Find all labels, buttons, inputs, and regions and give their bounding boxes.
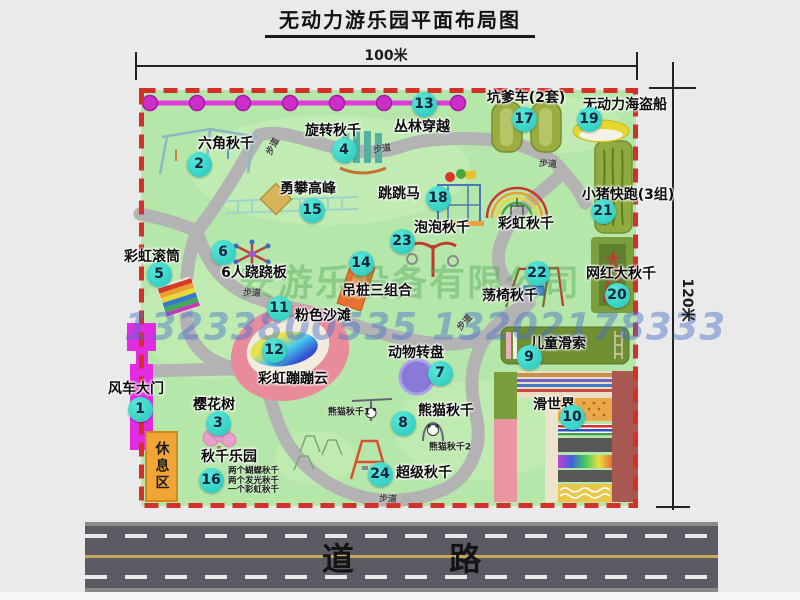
sublabel-panda-swing-2: 熊猫秋千2 <box>429 440 471 453</box>
badge-22: 22 <box>525 261 550 286</box>
label-pit-car: 坑爹车(2套) <box>487 87 566 107</box>
label-windmill-gate: 风车大门 <box>108 378 164 398</box>
label-rainbow-swing: 彩虹秋千 <box>498 213 554 233</box>
label-animal-carousel: 动物转盘 <box>388 342 444 362</box>
label-peak-climbing: 勇攀高峰 <box>280 178 336 198</box>
badge-16: 16 <box>199 468 224 493</box>
badge-18: 18 <box>426 186 451 211</box>
walkway-label-3: 步道 <box>539 156 558 170</box>
badge-21: 21 <box>591 199 616 224</box>
badge-2: 2 <box>187 152 212 177</box>
swing-park-note-3: 一个彩虹秋千 <box>228 486 279 496</box>
badge-13: 13 <box>412 92 437 117</box>
dimension-height-label: 120米 <box>678 278 698 321</box>
badge-24: 24 <box>368 462 393 487</box>
badge-3: 3 <box>206 411 231 436</box>
label-super-swing: 超级秋千 <box>396 462 452 482</box>
rest-area-label: 休息区 <box>152 441 172 492</box>
swing-park-notes: 两个蝴蝶秋千 两个发光秋千 一个彩虹秋千 <box>228 467 279 496</box>
label-big-swing: 网红大秋千 <box>586 263 656 283</box>
label-swing-park: 秋千乐园 <box>201 446 257 466</box>
sublabel-panda-swing-1: 熊猫秋千1 <box>328 405 370 418</box>
label-hanging-pile-combo: 吊桩三组合 <box>342 280 412 300</box>
label-jungle-crossing: 丛林穿越 <box>394 116 450 136</box>
walkway-label-2: 步道 <box>372 140 392 155</box>
label-rotating-swing: 旋转秋千 <box>305 120 361 140</box>
label-panda-swing: 熊猫秋千 <box>418 400 474 420</box>
badge-1: 1 <box>128 397 153 422</box>
dimension-width-label: 100米 <box>364 45 407 65</box>
label-chair-swing: 荡椅秋千 <box>482 285 538 305</box>
badge-17: 17 <box>512 107 537 132</box>
badge-11: 11 <box>267 296 292 321</box>
badge-8: 8 <box>391 411 416 436</box>
label-rainbow-bounce-cloud: 彩虹蹦蹦云 <box>258 368 328 388</box>
badge-20: 20 <box>605 283 630 308</box>
rest-area: 休息区 <box>145 431 178 502</box>
label-pink-beach: 粉色沙滩 <box>295 305 351 325</box>
label-jumping-horse: 跳跳马 <box>378 183 420 203</box>
badge-14: 14 <box>349 251 374 276</box>
badge-19: 19 <box>577 107 602 132</box>
badge-12: 12 <box>262 338 287 363</box>
badge-7: 7 <box>428 361 453 386</box>
walkway-label-4: 步道 <box>243 285 262 299</box>
badge-9: 9 <box>517 345 542 370</box>
road-label: 道 路 <box>280 534 523 580</box>
walkway-label-6: 步道 <box>379 491 398 505</box>
label-hexagon-swing: 六角秋千 <box>198 133 254 153</box>
page-title: 无动力游乐园平面布局图 <box>265 4 535 38</box>
badge-4: 4 <box>332 138 357 163</box>
road: 道 路 <box>85 522 718 592</box>
badge-5: 5 <box>147 262 172 287</box>
badge-15: 15 <box>300 198 325 223</box>
badge-23: 23 <box>390 229 415 254</box>
label-bubble-swing: 泡泡秋千 <box>414 217 470 237</box>
park-layout-page: 无动力游乐园平面布局图 <box>0 0 800 600</box>
label-six-person-seesaw: 6人跷跷板 <box>221 262 287 282</box>
badge-6: 6 <box>211 240 236 265</box>
badge-10: 10 <box>560 405 585 430</box>
